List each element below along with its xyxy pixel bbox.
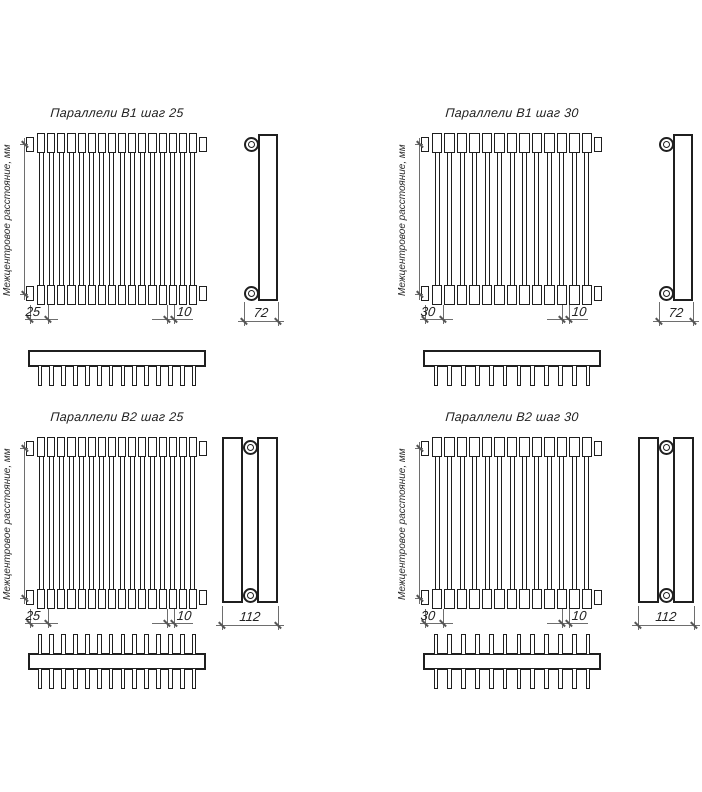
drawing-canvas: Параллели В1 шаг 25 Межцентровое расстоя… (0, 0, 702, 792)
depth-dim-line (632, 625, 700, 626)
center-distance-dim-line (419, 138, 420, 300)
dim-label-depth: 112 (234, 609, 266, 624)
center-distance-dim-line (419, 442, 420, 604)
panel-b2-step30: Параллели В2 шаг 30 Межцентровое расстоя… (395, 404, 702, 704)
dim-label-end: 10 (571, 608, 587, 623)
depth-dim-line (216, 625, 284, 626)
dim-label-depth: 112 (650, 609, 682, 624)
dimension-annotations: 251072 (0, 100, 307, 400)
center-distance-dim-line (24, 138, 25, 300)
dimension-annotations: 2510112 (0, 404, 307, 704)
panel-b2-step25: Параллели В2 шаг 25 Межцентровое расстоя… (0, 404, 307, 704)
dimension-annotations: 301072 (395, 100, 702, 400)
dim-label-step: 30 (414, 304, 442, 319)
panel-b1-step25: Параллели В1 шаг 25 Межцентровое расстоя… (0, 100, 307, 400)
panel-b1-step30: Параллели В1 шаг 30 Межцентровое расстоя… (395, 100, 702, 400)
center-distance-dim-line (24, 442, 25, 604)
dim-label-step: 25 (19, 608, 47, 623)
dim-label-end: 10 (571, 304, 587, 319)
dim-label-step: 30 (414, 608, 442, 623)
dim-label-end: 10 (176, 304, 192, 319)
dim-label-end: 10 (176, 608, 192, 623)
dim-label-step: 25 (19, 304, 47, 319)
dim-label-depth: 72 (245, 305, 277, 320)
dimension-annotations: 3010112 (395, 404, 702, 704)
dim-label-depth: 72 (660, 305, 692, 320)
